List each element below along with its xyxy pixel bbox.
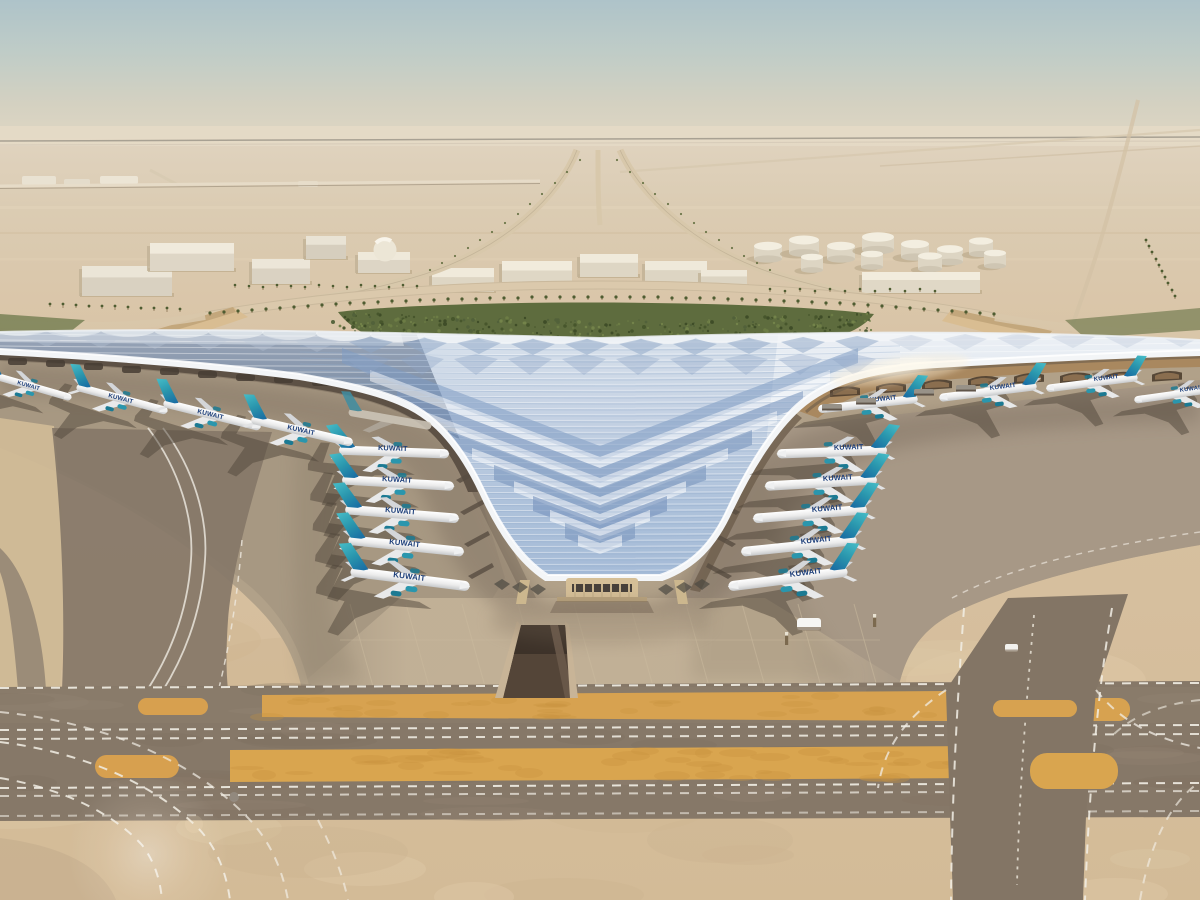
svg-text:KUWAIT: KUWAIT	[382, 474, 413, 485]
svg-text:KUWAIT: KUWAIT	[378, 443, 408, 453]
svg-text:KUWAIT: KUWAIT	[834, 442, 864, 452]
svg-text:KUWAIT: KUWAIT	[823, 472, 854, 483]
